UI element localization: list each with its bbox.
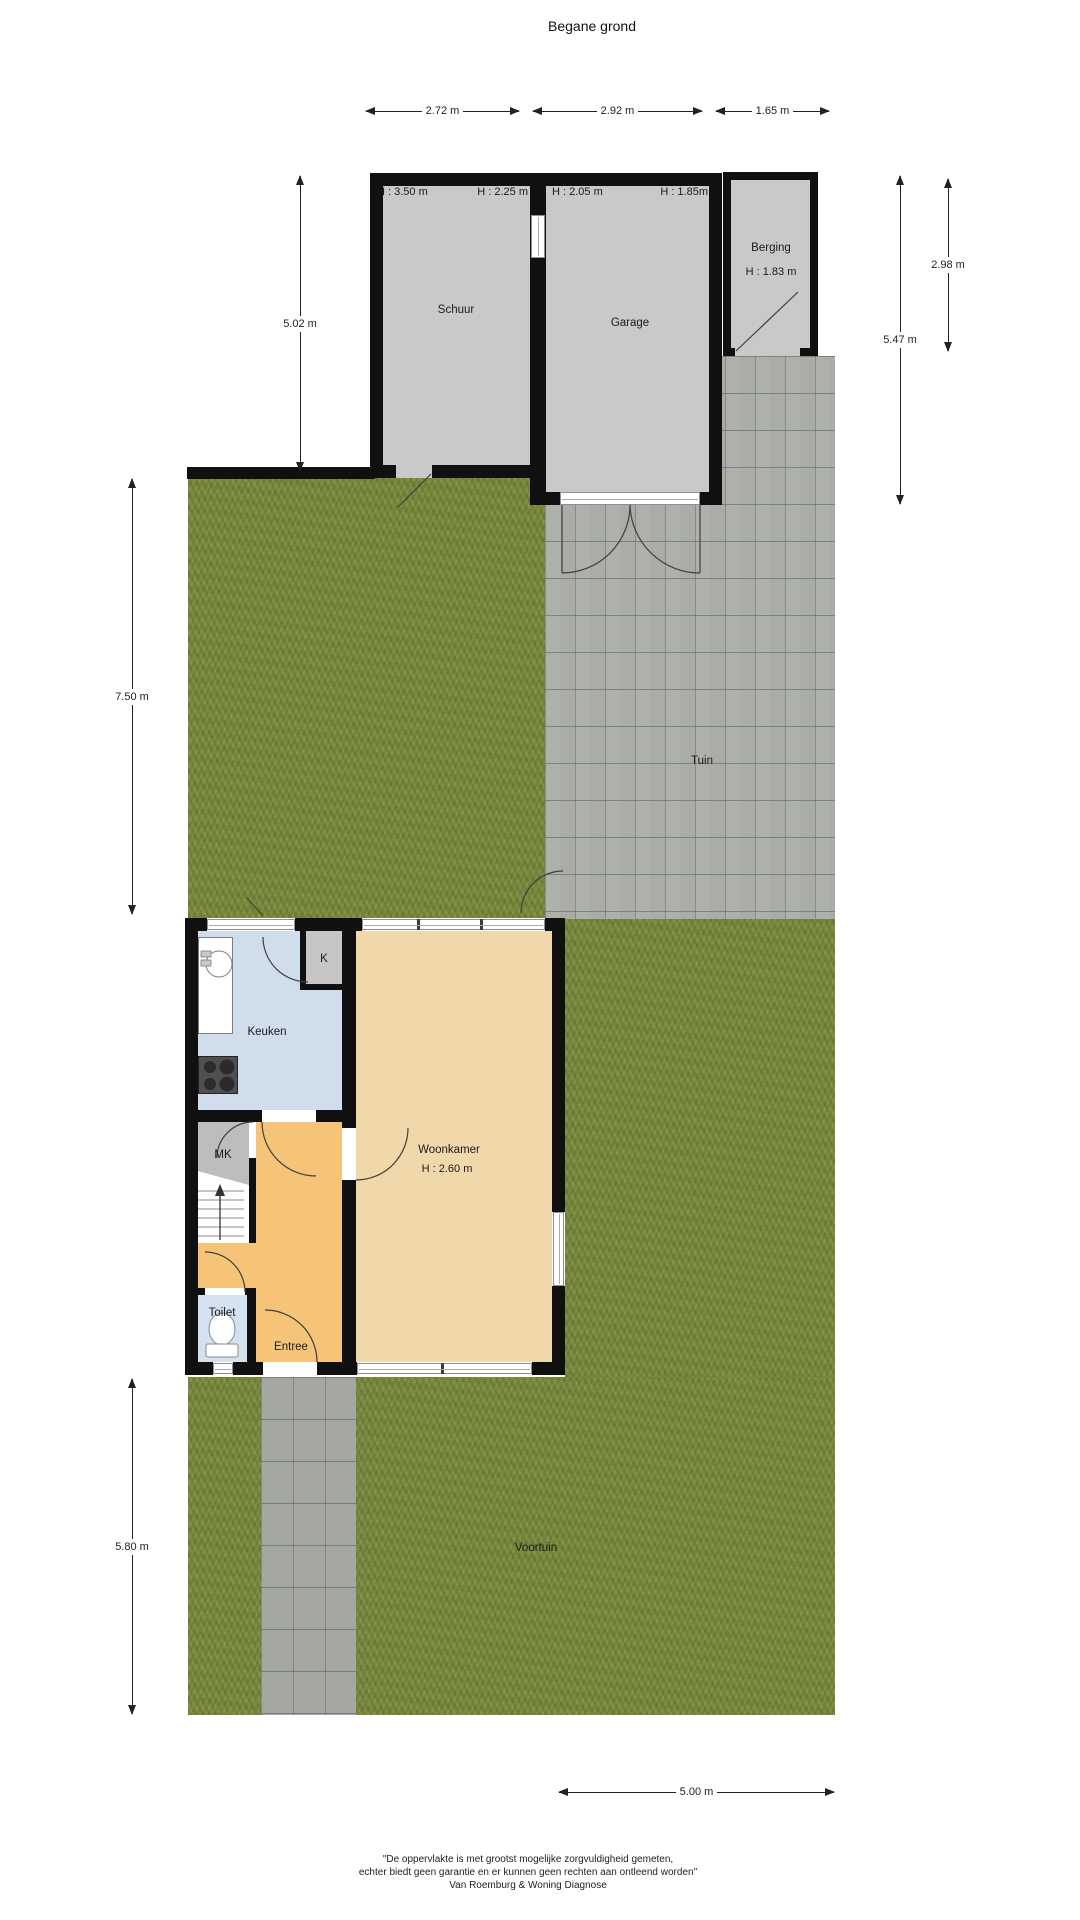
- voortuin-label: Voortuin: [515, 1542, 557, 1554]
- schuur-wall-left: [370, 173, 383, 478]
- disclaimer: "De oppervlakte is met grootst mogelijke…: [359, 1853, 697, 1892]
- disclaimer-line-3: Van Roemburg & Woning Diagnose: [359, 1879, 697, 1892]
- keuken-woonkamer-wall: [342, 931, 356, 1128]
- berging-height-label: H : 1.83 m: [746, 266, 797, 278]
- dim-left-schuur: 5.02 m: [293, 175, 307, 472]
- house-wall-bottom-b: [233, 1362, 263, 1375]
- house-wall-right-upper: [552, 918, 565, 1212]
- woonkamer-label: Woonkamer: [418, 1144, 480, 1156]
- window-divider: [480, 919, 483, 930]
- dim-right-berging: 2.98 m: [941, 178, 955, 352]
- hall-floor-band: [198, 1243, 256, 1288]
- dimension-label: 5.47 m: [880, 332, 920, 348]
- schuur-wall-bottom-left: [370, 465, 396, 478]
- arrow-up-icon: [296, 175, 304, 185]
- keuken-hall-wall-a: [185, 1110, 262, 1122]
- schuur-label: Schuur: [438, 304, 474, 316]
- arrow-down-icon: [128, 1705, 136, 1715]
- arrow-down-icon: [944, 342, 952, 352]
- arrow-down-icon: [128, 905, 136, 915]
- berging-floor: [723, 172, 818, 356]
- disclaimer-line-2: echter biedt geen garantie en er kunnen …: [359, 1866, 697, 1879]
- arrow-left-icon: [532, 107, 542, 115]
- kast-wall-bottom: [300, 984, 342, 990]
- dimension-label: 1.65 m: [752, 105, 794, 117]
- dim-top-garage: 2.92 m: [532, 104, 703, 118]
- toilet-wall-top-a: [185, 1288, 205, 1295]
- toilet-window: [213, 1363, 233, 1374]
- dimension-label: 2.92 m: [597, 105, 639, 117]
- garage-height-left-label: H : 2.05 m: [552, 186, 603, 198]
- dimension-label: 5.00 m: [676, 1786, 718, 1798]
- keuken-hall-wall-b: [316, 1110, 342, 1122]
- dim-right-garage: 5.47 m: [893, 175, 907, 505]
- garage-wall-bottom-right: [700, 492, 722, 505]
- berging-label: Berging: [751, 242, 791, 254]
- dim-top-berging: 1.65 m: [715, 104, 830, 118]
- arrow-right-icon: [510, 107, 520, 115]
- dimension-label: 2.72 m: [422, 105, 464, 117]
- entree-label: Entree: [274, 1341, 308, 1353]
- woonkamer-side-window: [553, 1212, 564, 1286]
- dimension-label: 5.80 m: [112, 1539, 152, 1555]
- schuur-wall-top: [370, 173, 543, 186]
- garage-label: Garage: [611, 317, 649, 329]
- window-divider: [441, 1363, 444, 1374]
- kitchen-counter: [198, 937, 233, 1034]
- dim-left-back-garden: 7.50 m: [125, 478, 139, 915]
- kast-label: K: [320, 953, 328, 965]
- side-garden-grass: [565, 919, 835, 1377]
- schuur-height-right-label: H : 2.25 m: [477, 186, 528, 198]
- garage-door-threshold: [560, 492, 700, 505]
- kast-wall-left: [300, 931, 306, 990]
- garage-wall-right: [709, 173, 722, 505]
- window-divider: [417, 919, 420, 930]
- arrow-up-icon: [944, 178, 952, 188]
- entree-hall-floor: [256, 1122, 342, 1362]
- house-wall-top-b: [295, 918, 362, 931]
- dimension-label: 5.02 m: [280, 316, 320, 332]
- front-garden-path: [261, 1377, 356, 1715]
- meterkast-label: MK: [214, 1149, 231, 1161]
- arrow-right-icon: [820, 107, 830, 115]
- berging-wall-bottom-left: [723, 348, 735, 356]
- stairs-floor: [198, 1185, 249, 1243]
- keuken-window: [207, 919, 295, 930]
- toilet-floor: [198, 1295, 247, 1362]
- disclaimer-line-1: "De oppervlakte is met grootst mogelijke…: [359, 1853, 697, 1866]
- berging-wall-left: [723, 172, 731, 356]
- dim-bottom-garden: 5.00 m: [558, 1785, 835, 1799]
- berging-wall-right: [810, 172, 818, 356]
- house-wall-left: [185, 918, 198, 1375]
- schuur-garage-window: [531, 215, 545, 258]
- schuur-height-left-label: H : 3.50 m: [377, 186, 428, 198]
- dim-top-schuur: 2.72 m: [365, 104, 520, 118]
- schuur-wall-bottom-right: [432, 465, 543, 478]
- garage-wall-top: [533, 173, 722, 186]
- arrow-down-icon: [296, 462, 304, 472]
- woonkamer-front-window: [357, 1363, 532, 1374]
- house-wall-bottom-d: [532, 1362, 565, 1375]
- garage-wall-bottom-left: [533, 492, 560, 505]
- dim-left-front-garden: 5.80 m: [125, 1378, 139, 1715]
- page-title: Begane grond: [548, 18, 636, 34]
- arrow-up-icon: [128, 478, 136, 488]
- berging-wall-top: [723, 172, 818, 180]
- dimension-label: 2.98 m: [928, 257, 968, 273]
- arrow-left-icon: [558, 1788, 568, 1796]
- garden-boundary-wall: [187, 467, 375, 479]
- back-garden-grass: [188, 473, 545, 918]
- tuin-label: Tuin: [691, 755, 713, 767]
- arrow-up-icon: [128, 1378, 136, 1388]
- house-wall-bottom-c: [317, 1362, 357, 1375]
- woonkamer-back-window: [362, 919, 545, 930]
- berging-wall-bottom-right: [800, 348, 818, 356]
- dimension-label: 7.50 m: [112, 689, 152, 705]
- schuur-floor: [370, 173, 543, 478]
- arrow-right-icon: [693, 107, 703, 115]
- garage-floor: [533, 173, 722, 505]
- meterkast-stairs-wall: [249, 1158, 256, 1243]
- keuken-label: Keuken: [247, 1026, 286, 1038]
- toilet-wall-right: [247, 1288, 256, 1362]
- stove: [198, 1056, 238, 1094]
- arrow-left-icon: [715, 107, 725, 115]
- floorplan-canvas: Begane grond: [0, 0, 1080, 1920]
- arrow-right-icon: [825, 1788, 835, 1796]
- toilet-label: Toilet: [209, 1307, 236, 1319]
- arrow-down-icon: [896, 495, 904, 505]
- arrow-left-icon: [365, 107, 375, 115]
- woonkamer-height-label: H : 2.60 m: [422, 1163, 473, 1175]
- house-wall-bottom-a: [185, 1362, 213, 1375]
- hall-woonkamer-wall: [342, 1180, 356, 1362]
- garage-height-right-label: H : 1.85m: [660, 186, 708, 198]
- arrow-up-icon: [896, 175, 904, 185]
